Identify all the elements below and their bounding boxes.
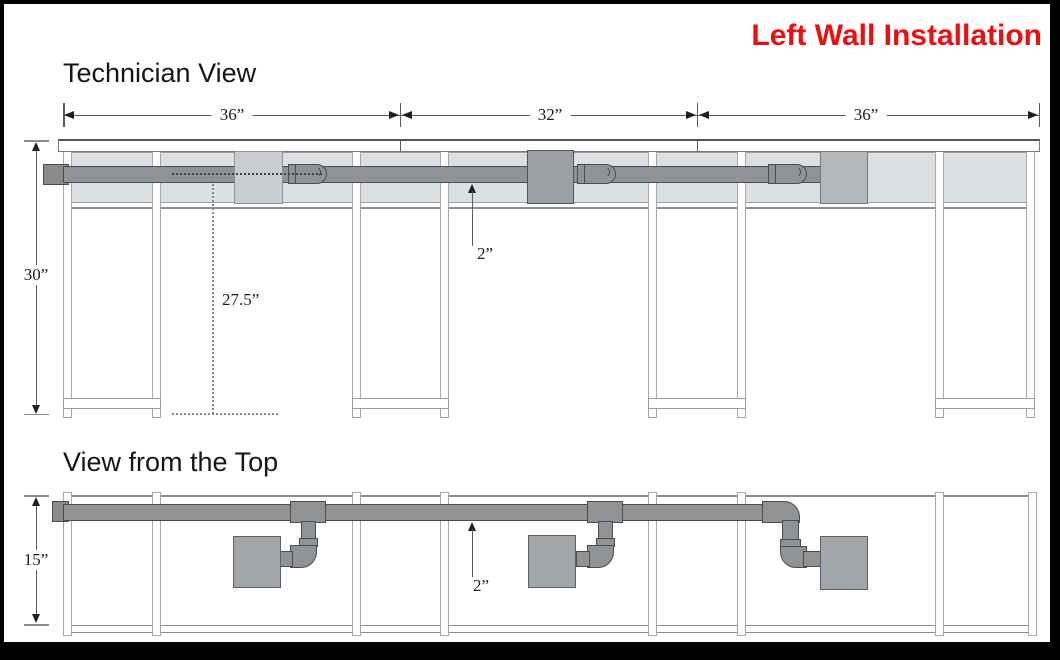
arrowhead-down-icon xyxy=(32,614,40,623)
conduit-pipe-top xyxy=(63,504,780,521)
apron-line xyxy=(63,207,1035,209)
bench-rail xyxy=(63,398,161,409)
dim-tick-32-36 xyxy=(697,103,699,127)
conduit-pipe xyxy=(63,166,822,183)
dim-extension-right xyxy=(1039,103,1041,127)
elbow-fitting xyxy=(290,545,317,568)
height-dim-label: 30” xyxy=(16,265,57,285)
coupling-bell-arc xyxy=(597,166,610,178)
page-title: Left Wall Installation xyxy=(751,19,1042,53)
bench-rail xyxy=(648,398,746,409)
tee-fitting xyxy=(290,501,326,523)
pipe-size-leader xyxy=(472,529,474,577)
frame-border-right xyxy=(1050,0,1060,660)
box-stub xyxy=(576,551,590,567)
arrowhead-left-icon xyxy=(402,111,412,119)
width-dim-label-2: 32” xyxy=(530,105,571,125)
installation-diagram: Left Wall Installation Technician View V… xyxy=(0,0,1060,660)
arrowhead-left-icon xyxy=(699,111,709,119)
width-dim-label-1: 36” xyxy=(212,105,253,125)
pipe-size-dim-label-top: 2” xyxy=(473,576,489,596)
arrowhead-down-icon xyxy=(32,405,40,414)
arrowhead-up-icon xyxy=(32,142,40,151)
bench-rail xyxy=(352,398,449,409)
bench-top-joint xyxy=(400,141,402,151)
junction-box-top-2 xyxy=(528,535,576,588)
pipe-centerline-dotted xyxy=(172,173,322,175)
dim-tick-36-32 xyxy=(400,103,402,127)
top-view-title: View from the Top xyxy=(63,447,278,478)
coupling-bell-arc xyxy=(788,166,801,178)
bottom-plate xyxy=(63,625,1037,633)
bench-rail xyxy=(935,398,1035,409)
height-reference-dotted xyxy=(212,177,214,414)
bench-top-joint xyxy=(697,141,699,151)
frame-border-left xyxy=(0,0,4,660)
pipe-coupling xyxy=(775,164,807,184)
wall-stud xyxy=(935,140,944,418)
arrowhead-right-icon xyxy=(686,111,696,119)
pipe-height-dim-label: 27.5” xyxy=(222,290,259,310)
frame-border-bottom xyxy=(0,642,1060,660)
depth-dim-label: 15” xyxy=(16,550,57,570)
junction-box-1 xyxy=(234,151,283,204)
dim-tick-bottom xyxy=(24,624,49,626)
arrowhead-right-icon xyxy=(1028,111,1038,119)
wall-stud xyxy=(1028,492,1037,636)
junction-box-3 xyxy=(820,151,868,204)
pipe-coupling xyxy=(584,164,616,184)
junction-box-top-1 xyxy=(233,536,281,588)
junction-box-top-3 xyxy=(820,536,868,590)
floor-reference-dotted xyxy=(172,413,278,415)
pipe-size-leader xyxy=(472,191,474,246)
frame-border-top xyxy=(0,0,1060,4)
wall-stud xyxy=(935,492,944,636)
junction-box-2 xyxy=(527,150,574,204)
width-dim-label-3: 36” xyxy=(846,105,887,125)
wall-stud xyxy=(1026,140,1035,418)
arrowhead-up-icon xyxy=(32,497,40,506)
arrowhead-left-icon xyxy=(64,111,74,119)
pipe-size-dim-label: 2” xyxy=(477,244,493,264)
tech-view-title: Technician View xyxy=(63,58,256,89)
wall-edge-line xyxy=(63,495,1037,497)
arrowhead-right-icon xyxy=(389,111,399,119)
box-stub xyxy=(279,551,293,567)
tee-fitting xyxy=(587,501,623,523)
elbow-fitting xyxy=(587,545,614,568)
